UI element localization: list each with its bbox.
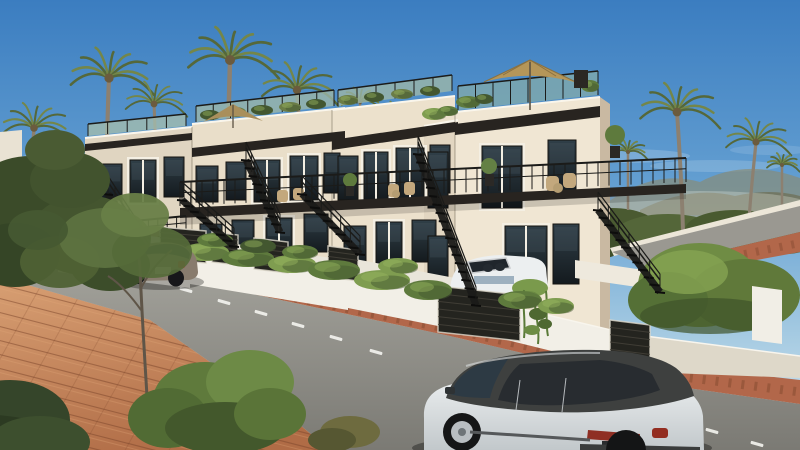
shrub [240,239,276,253]
plant-pot [346,186,354,196]
shrub [391,89,413,99]
window [226,162,246,200]
patio-chair [563,173,576,188]
shrub [538,298,574,314]
shrub [420,86,440,96]
shrub [438,106,458,116]
shrub [498,291,542,309]
palm-crown-center [293,86,301,94]
plant-pot [610,146,620,158]
wall-pier [752,286,782,344]
shrub [279,102,301,112]
shrub [251,105,273,115]
shrub [404,280,452,300]
plant-pot [485,174,494,186]
palm-crown-center [30,124,38,132]
palm-crown-center [673,108,682,117]
tail-light [652,428,668,438]
potted-plant [481,158,497,174]
patio-table [553,183,563,193]
potted-plant [605,125,625,145]
patio-chair [277,190,288,202]
window [164,157,184,197]
side-mirror [445,387,455,394]
shrub [282,245,318,259]
palm-crown-center [626,150,630,154]
palm-crown-center [752,138,759,145]
shrub [364,92,384,102]
shrub [378,258,418,274]
patio-chair [404,182,415,195]
scene-render [0,0,800,450]
palm-crown-center [104,73,113,82]
palm-crown-center [151,101,158,108]
shrub [475,94,493,104]
patio-table [392,190,400,198]
side-reflection [474,276,514,284]
car-seat [495,263,505,271]
shrub [338,95,358,105]
shrub [308,260,360,280]
render-viewport [0,0,800,450]
car-seat [483,264,493,272]
wheel-hub [458,428,466,436]
window [361,149,391,203]
potted-plant [343,173,357,187]
chimney [574,70,588,88]
palm-crown-center [225,55,235,65]
shrub [306,99,326,109]
palm-crown-center [780,163,784,167]
